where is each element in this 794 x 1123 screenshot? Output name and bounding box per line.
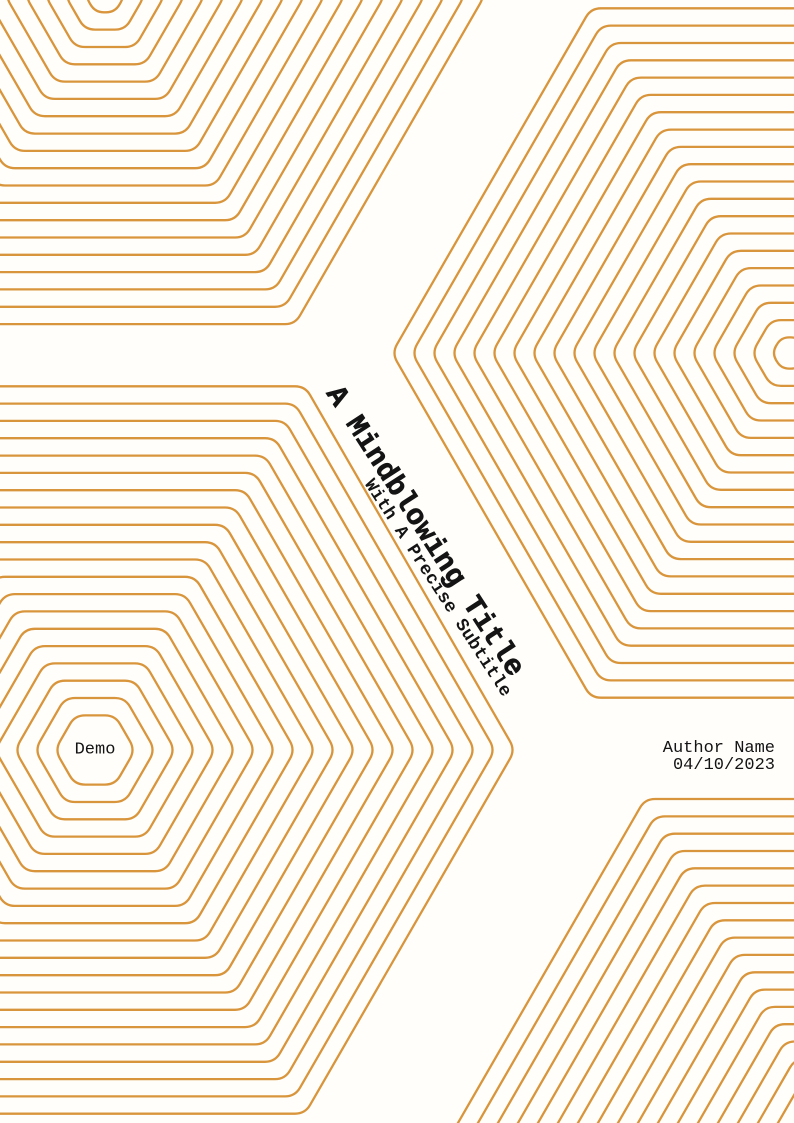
hexagon-ring xyxy=(0,0,363,220)
hexagon-ring xyxy=(695,268,794,438)
hexagon-ring xyxy=(393,834,794,1123)
hexagon-ring xyxy=(0,0,343,203)
hexagon-ring xyxy=(0,629,233,871)
hexagon-ring xyxy=(48,0,163,47)
hexagon-ring xyxy=(455,60,794,645)
hexagon-ring xyxy=(0,456,433,1045)
author-block: Author Name 04/10/2023 xyxy=(663,740,775,774)
hexagon-ring xyxy=(0,0,323,186)
hexagon-ring xyxy=(0,0,283,151)
hexagon-ring xyxy=(553,972,794,1123)
hexagon-ring xyxy=(495,95,794,611)
demo-badge: Demo xyxy=(75,741,116,760)
hexagon-ring xyxy=(593,1007,794,1123)
hexagon-ring xyxy=(0,0,223,99)
hexagon-ring xyxy=(0,473,413,1027)
hexagon-ring xyxy=(0,0,303,168)
hexagon-ring xyxy=(0,525,353,975)
document-date: 04/10/2023 xyxy=(663,757,775,774)
hexagon-ring xyxy=(0,438,453,1062)
hexagon-ring xyxy=(0,542,333,958)
author-name: Author Name xyxy=(663,740,775,757)
cover-page: A Mindblowing Title With A Precise Subti… xyxy=(0,0,794,1123)
hexagon-ring xyxy=(774,337,794,368)
hexagon-ring xyxy=(735,303,794,403)
hexagon-ring xyxy=(0,560,313,941)
hexagon-ring xyxy=(0,0,483,324)
hexagon-ring xyxy=(68,0,143,30)
hexagon-pattern xyxy=(0,0,794,1123)
hexagon-ring xyxy=(87,0,123,12)
hexagon-ring xyxy=(615,199,794,507)
hexagon-ring xyxy=(28,0,183,64)
